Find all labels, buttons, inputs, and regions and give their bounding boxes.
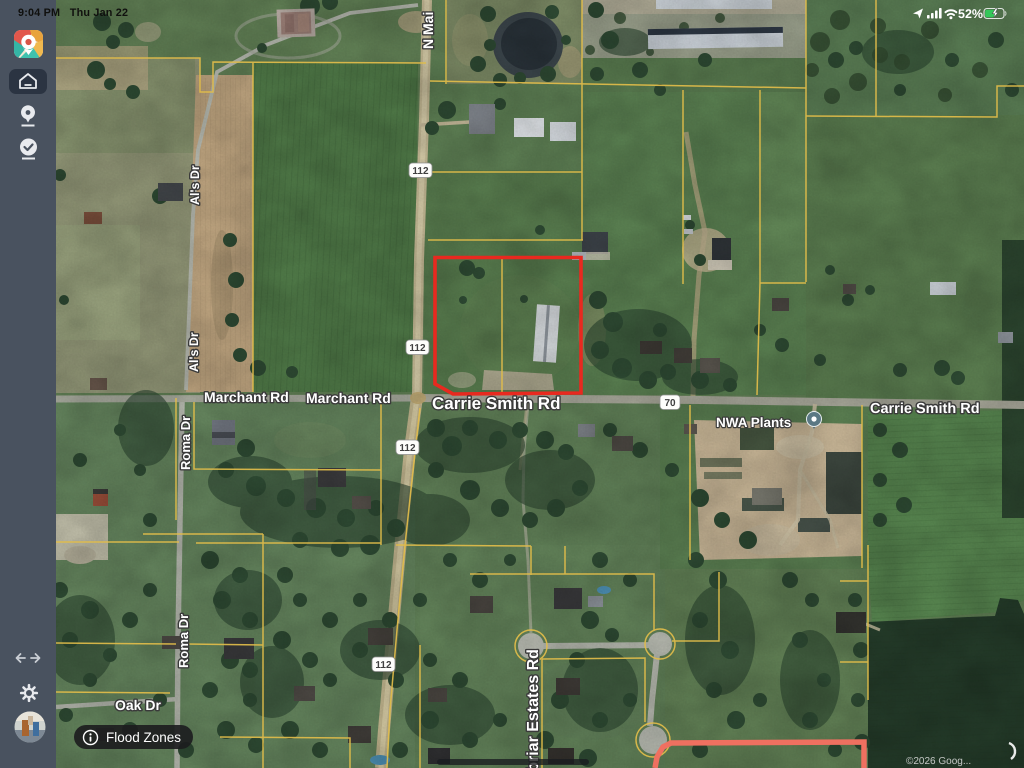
- svg-text:Marchant Rd: Marchant Rd: [204, 389, 289, 405]
- svg-text:N Mai: N Mai: [420, 12, 436, 49]
- svg-text:Roma Dr: Roma Dr: [176, 614, 191, 668]
- svg-text:Al's Dr: Al's Dr: [188, 165, 202, 205]
- svg-text:112: 112: [409, 343, 426, 354]
- svg-text:112: 112: [375, 660, 392, 671]
- svg-text:mbriar Estates Rd: mbriar Estates Rd: [525, 649, 542, 768]
- svg-text:112: 112: [412, 166, 429, 177]
- svg-text:Carrie Smith Rd: Carrie Smith Rd: [870, 401, 980, 417]
- svg-text:NWA Plants: NWA Plants: [716, 415, 791, 430]
- svg-text:Marchant Rd: Marchant Rd: [306, 390, 391, 406]
- svg-text:112: 112: [399, 443, 416, 454]
- svg-text:Oak Dr: Oak Dr: [115, 697, 161, 713]
- svg-text:Carrie Smith Rd: Carrie Smith Rd: [432, 394, 560, 413]
- svg-text:©2026 Goog...: ©2026 Goog...: [906, 756, 971, 767]
- svg-text:Al's Dr: Al's Dr: [187, 332, 201, 372]
- svg-text:70: 70: [664, 398, 676, 409]
- svg-text:52%: 52%: [958, 7, 983, 21]
- svg-text:Roma Dr: Roma Dr: [178, 416, 193, 470]
